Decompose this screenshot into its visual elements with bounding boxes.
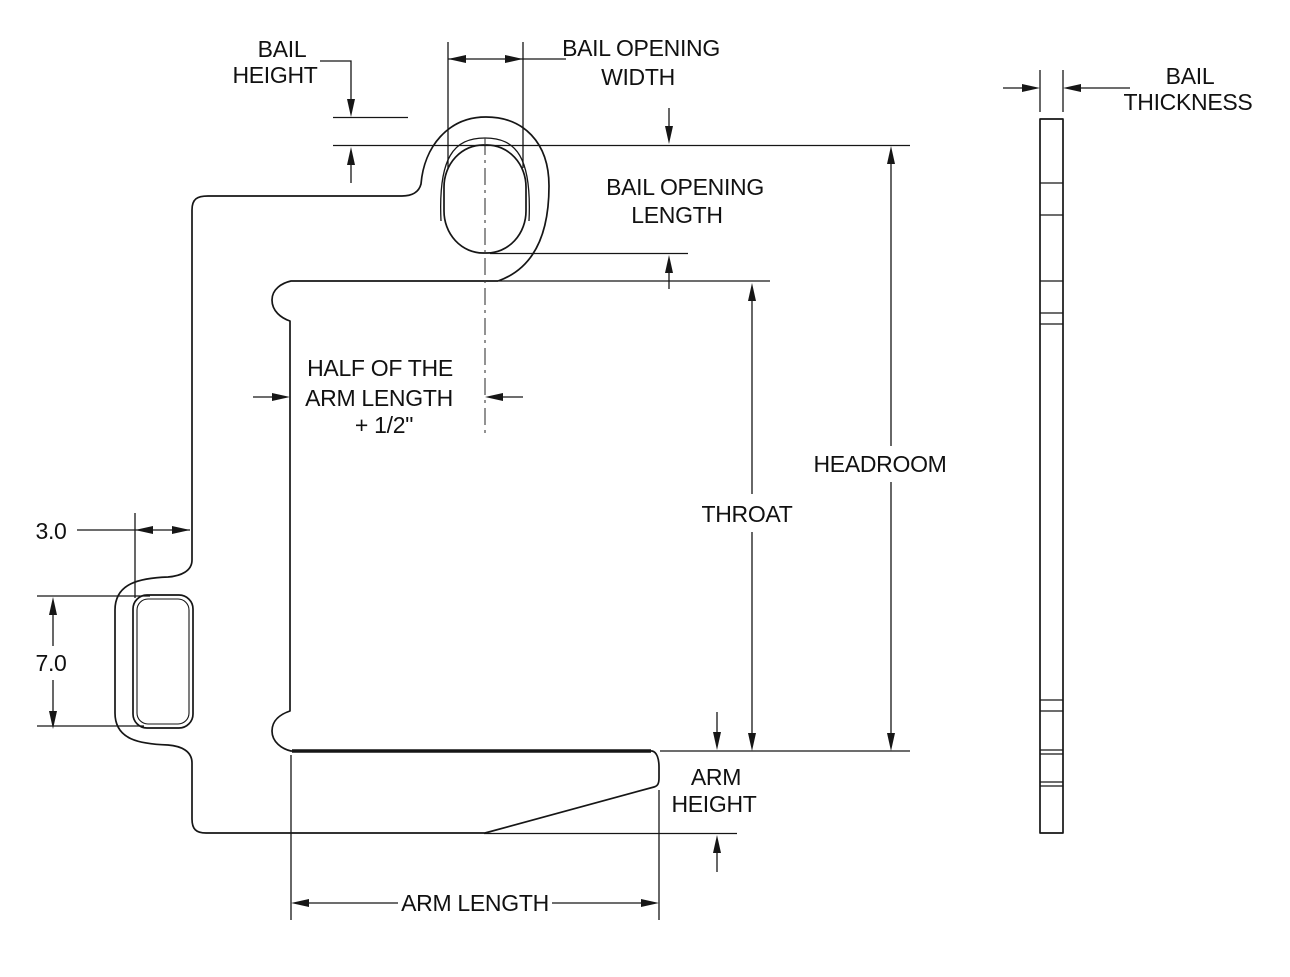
arrow-down: [347, 99, 355, 117]
half-arm-length-label-line3: + 1/2": [355, 412, 413, 438]
arrow-left: [291, 899, 309, 907]
arrow-down: [748, 733, 756, 751]
arrow-down: [887, 733, 895, 751]
dimension-throat: THROAT: [701, 283, 792, 751]
half-arm-length-label-line2: ARM LENGTH: [305, 385, 453, 411]
half-arm-length-label-line1: HALF OF THE: [307, 355, 453, 381]
dimension-headroom: HEADROOM: [813, 146, 946, 751]
arrow-up: [347, 147, 355, 165]
arrow-up: [748, 283, 756, 301]
bail-height-leader: [320, 61, 351, 99]
arrow-down: [713, 732, 721, 750]
c-hook-outline: [115, 117, 659, 833]
arrow-up: [49, 597, 57, 615]
arrow-left: [1063, 84, 1081, 92]
bail-opening-width-label-line2: WIDTH: [601, 64, 675, 90]
arrow-up: [665, 255, 673, 273]
dimension-bail-opening-width: BAIL OPENING WIDTH: [448, 35, 720, 168]
dimension-half-arm-length: HALF OF THE ARM LENGTH + 1/2": [253, 355, 523, 438]
bail-height-label-line2: HEIGHT: [232, 62, 317, 88]
arrow-right: [1022, 84, 1040, 92]
handle-slot-chamfer: [137, 599, 189, 724]
bail-opening-width-label-line1: BAIL OPENING: [562, 35, 720, 61]
arrow-left: [485, 393, 503, 401]
arrow-up: [713, 835, 721, 853]
bail-opening-length-label-line2: LENGTH: [631, 202, 723, 228]
arrow-right: [641, 899, 659, 907]
bail-thickness-label-line2: THICKNESS: [1124, 89, 1253, 115]
arrow-up: [887, 146, 895, 164]
bail-opening-length-label-line1: BAIL OPENING: [606, 174, 764, 200]
dimension-bail-thickness: BAIL THICKNESS: [1003, 63, 1252, 115]
arrow-right: [505, 55, 523, 63]
arrow-left: [135, 526, 153, 534]
throat-label: THROAT: [701, 501, 792, 527]
handle-slot: [133, 595, 193, 728]
side-profile-bar: [1040, 119, 1063, 833]
dimension-diagram: BAIL HEIGHT BAIL OPENING WIDTH BAIL OPEN…: [0, 0, 1290, 977]
front-view: [115, 117, 659, 833]
side-profile-segment-lines: [1040, 183, 1063, 786]
headroom-label: HEADROOM: [813, 451, 946, 477]
side-view: [1040, 119, 1063, 833]
arm-height-label-line2: HEIGHT: [671, 791, 756, 817]
dimension-slot-width: 3.0: [35, 513, 190, 598]
technical-drawing-canvas: BAIL HEIGHT BAIL OPENING WIDTH BAIL OPEN…: [0, 0, 1290, 977]
dimension-arm-height: ARM HEIGHT: [671, 712, 756, 872]
arm-height-label-line1: ARM: [691, 764, 741, 790]
dimension-bail-height: BAIL HEIGHT: [232, 36, 355, 183]
slot-width-value: 3.0: [35, 518, 66, 544]
bail-thickness-label-line1: BAIL: [1166, 63, 1215, 89]
arrow-down: [665, 126, 673, 144]
arrow-right: [172, 526, 190, 534]
bail-height-label-line1: BAIL: [258, 36, 307, 62]
dimension-bail-opening-length: BAIL OPENING LENGTH: [606, 108, 764, 289]
arm-length-label: ARM LENGTH: [401, 890, 549, 916]
arrow-right: [272, 393, 290, 401]
dimension-arm-length: ARM LENGTH: [291, 755, 659, 920]
arrow-left: [448, 55, 466, 63]
slot-height-value: 7.0: [35, 650, 66, 676]
